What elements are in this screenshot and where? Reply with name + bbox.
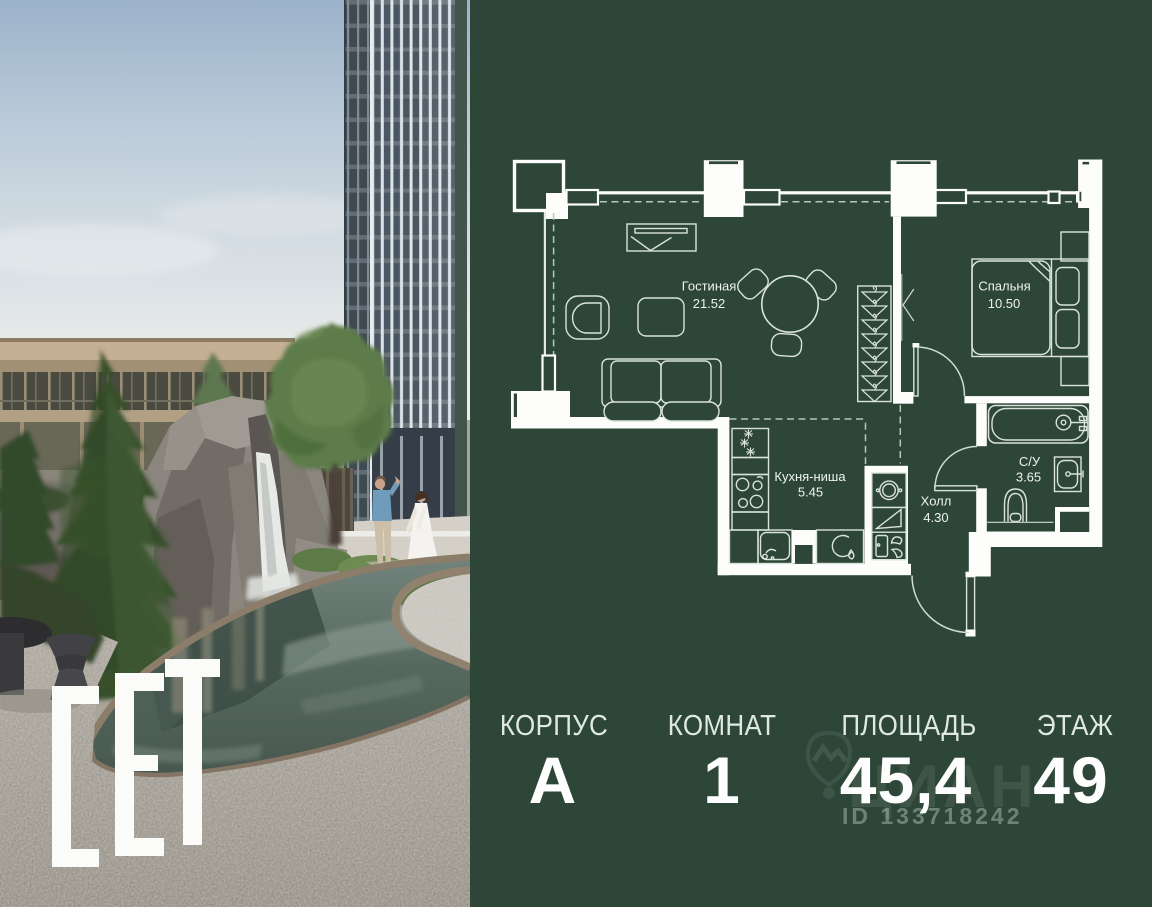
- svg-text:3.65: 3.65: [1016, 470, 1041, 485]
- svg-text:4.30: 4.30: [923, 510, 948, 525]
- svg-text:С/У: С/У: [1019, 454, 1041, 469]
- svg-text:10.50: 10.50: [988, 296, 1021, 311]
- svg-text:Кухня-ниша: Кухня-ниша: [774, 469, 846, 484]
- svg-text:Спальня: Спальня: [978, 279, 1030, 294]
- svg-text:5.45: 5.45: [798, 485, 823, 500]
- svg-text:Холл: Холл: [921, 494, 952, 509]
- svg-text:21.52: 21.52: [693, 296, 726, 311]
- svg-text:Гостиная: Гостиная: [682, 279, 737, 294]
